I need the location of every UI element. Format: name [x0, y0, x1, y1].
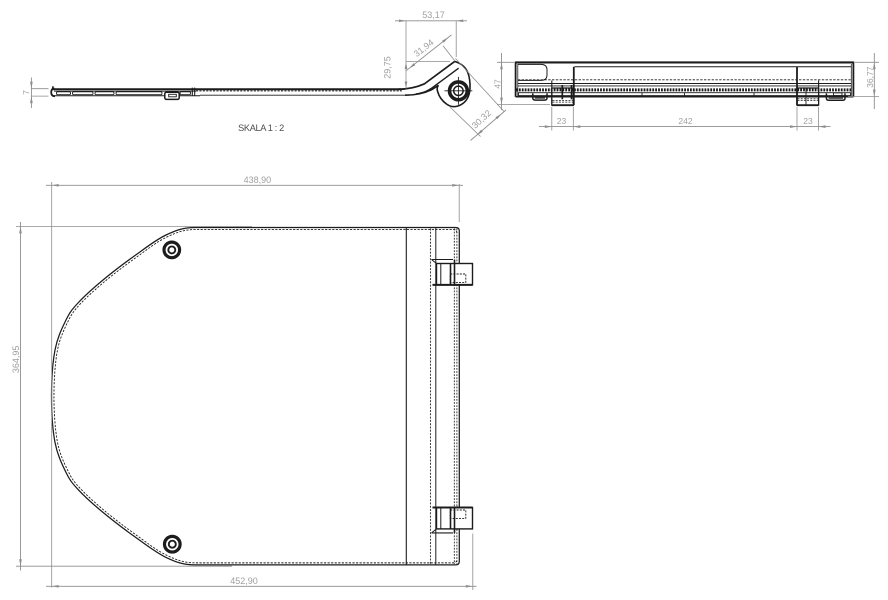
svg-text:SKALA 1 : 2: SKALA 1 : 2	[238, 123, 284, 133]
svg-text:29,75: 29,75	[383, 56, 393, 79]
svg-text:364,95: 364,95	[11, 346, 21, 374]
svg-text:242: 242	[678, 116, 692, 126]
svg-text:7: 7	[21, 90, 31, 95]
svg-text:438,90: 438,90	[244, 175, 272, 185]
svg-text:36,77: 36,77	[865, 66, 875, 88]
svg-text:53,17: 53,17	[422, 10, 445, 20]
svg-text:23: 23	[803, 116, 813, 126]
svg-text:47: 47	[492, 79, 502, 89]
svg-text:23: 23	[557, 116, 567, 126]
svg-text:452,90: 452,90	[230, 576, 258, 586]
